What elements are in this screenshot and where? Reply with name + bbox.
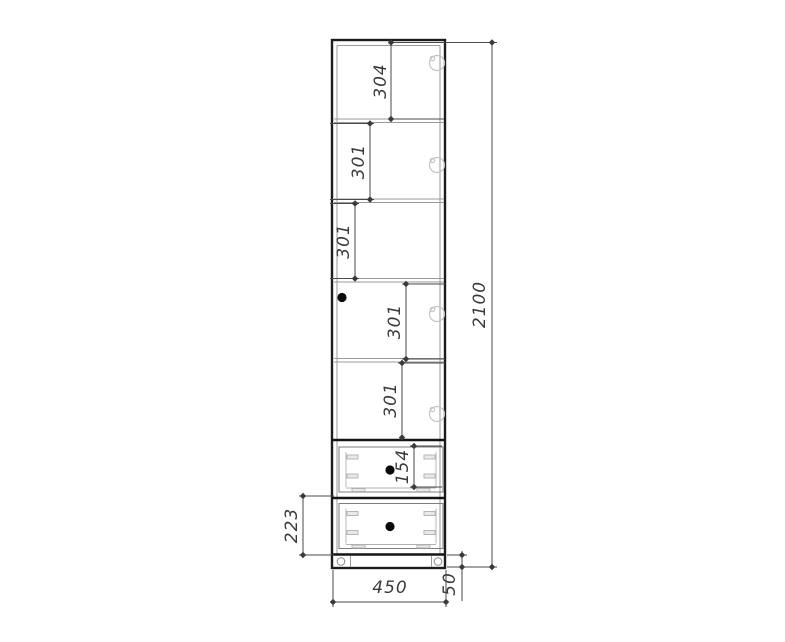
- drawing-canvas: 304 301 301 301 301: [0, 0, 785, 642]
- dim-label: 301: [334, 223, 354, 258]
- dim-label: 450: [372, 578, 407, 598]
- cabinet-technical-drawing: 304 301 301 301 301: [0, 0, 785, 642]
- dimension-overall-height: 2100: [447, 39, 497, 570]
- dim-label: 301: [381, 382, 401, 417]
- adjustable-foot-icon: [337, 558, 345, 566]
- adjustable-foot-icon: [434, 558, 442, 566]
- dimension-overall-width: 450: [330, 570, 449, 607]
- dim-label: 304: [371, 63, 391, 98]
- dim-label: 301: [349, 144, 369, 179]
- dim-label: 223: [282, 508, 302, 543]
- dim-label: 2100: [470, 281, 490, 328]
- dim-label: 154: [393, 449, 413, 484]
- drawer-knob: [385, 522, 394, 531]
- door-knob: [337, 293, 346, 302]
- dim-label: 50: [440, 572, 460, 596]
- dim-label: 301: [385, 304, 405, 339]
- dimension-drawer-2: 223: [282, 493, 334, 558]
